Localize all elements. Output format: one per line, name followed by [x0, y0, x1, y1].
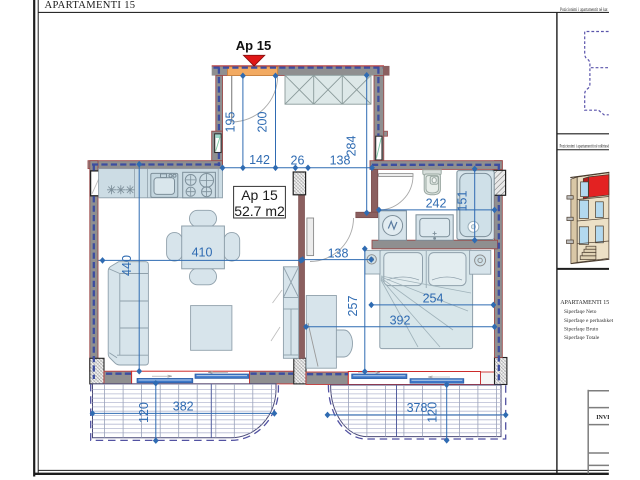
- svg-text:Pozicionimi i apartamentit në: Pozicionimi i apartamentit në ndërtesë: [560, 144, 610, 150]
- svg-text:Pozicionimi i apartamentit në: Pozicionimi i apartamentit në kat: [560, 7, 608, 13]
- svg-text:Siperfaqe Bruto: Siperfaqe Bruto: [564, 326, 599, 333]
- svg-text:410: 410: [192, 246, 213, 260]
- svg-text:392: 392: [390, 313, 411, 327]
- svg-text:200: 200: [256, 112, 270, 133]
- svg-text:195: 195: [224, 112, 238, 133]
- svg-text:Ap 15: Ap 15: [236, 38, 271, 53]
- svg-text:APARTAMENTI 15: APARTAMENTI 15: [560, 300, 609, 306]
- svg-text:Siperfaqe Totale: Siperfaqe Totale: [564, 334, 600, 341]
- svg-text:151: 151: [455, 191, 469, 212]
- svg-text:52.7 m2: 52.7 m2: [234, 203, 285, 219]
- svg-text:242: 242: [426, 197, 447, 211]
- svg-text:Siperfaqe e perbashket: Siperfaqe e perbashket: [564, 317, 614, 324]
- svg-text:254: 254: [423, 291, 444, 305]
- svg-text:Ap 15: Ap 15: [241, 187, 278, 203]
- svg-text:APARTAMENTI 15: APARTAMENTI 15: [45, 0, 136, 11]
- svg-text:378: 378: [407, 401, 428, 415]
- svg-text:Siperfaqe Neto: Siperfaqe Neto: [564, 308, 597, 315]
- svg-text:257: 257: [346, 296, 360, 317]
- svg-text:120: 120: [137, 402, 151, 423]
- svg-text:142: 142: [249, 153, 270, 167]
- svg-text:284: 284: [344, 136, 358, 157]
- svg-text:382: 382: [173, 400, 194, 414]
- svg-text:138: 138: [328, 247, 349, 261]
- svg-text:26: 26: [291, 153, 305, 167]
- svg-text:440: 440: [120, 255, 134, 276]
